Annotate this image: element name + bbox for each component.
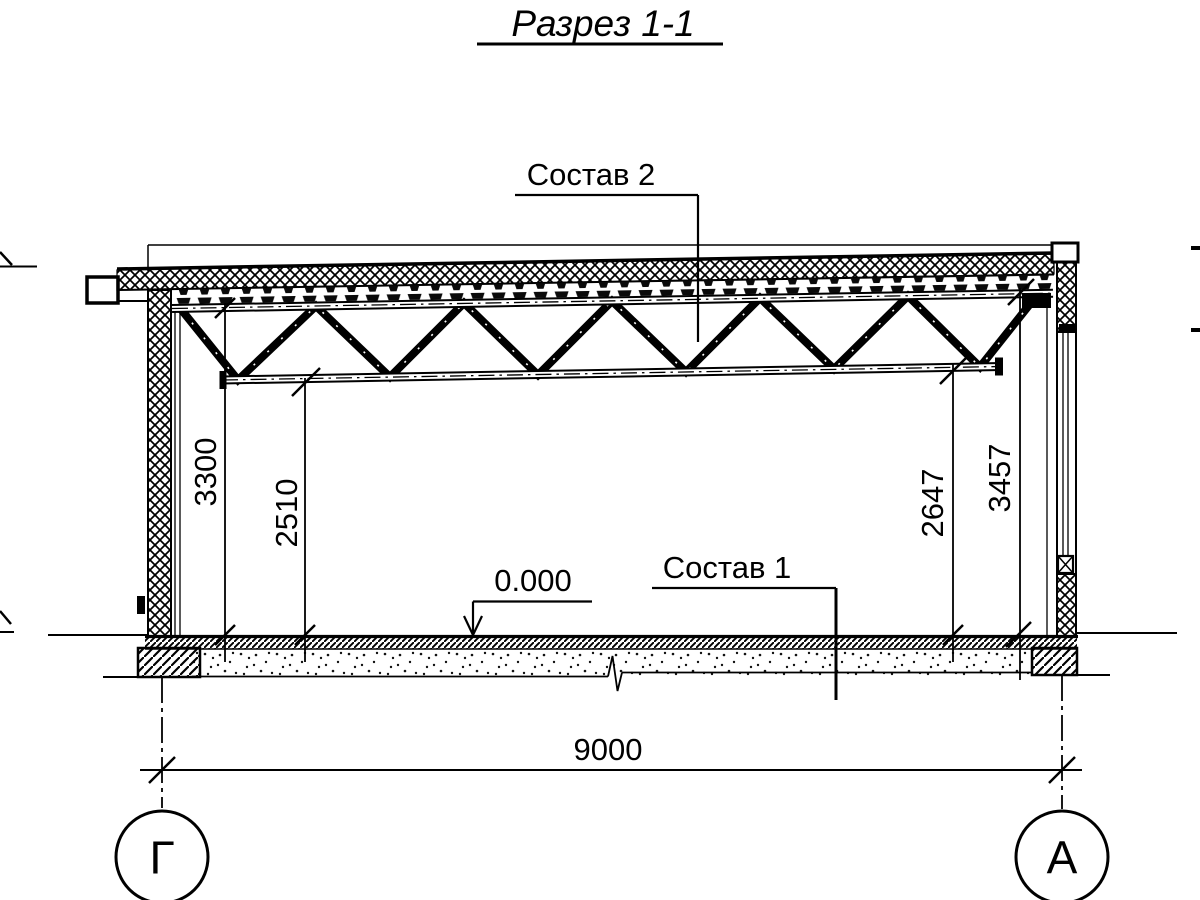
truss-seat-right xyxy=(1022,293,1051,308)
floor-screed xyxy=(145,638,1077,649)
ground-lines xyxy=(48,633,1177,635)
label-sostav-2: Состав 2 xyxy=(527,157,656,192)
dim-text-2510: 2510 xyxy=(269,479,304,548)
label-sostav-1: Состав 1 xyxy=(663,550,792,585)
drawing-canvas: Разрез 1-1 xyxy=(0,0,1200,900)
callout-floor-composition: Состав 1 xyxy=(652,550,836,700)
right-edge-level-marks xyxy=(1191,246,1200,332)
dim-text-3300: 3300 xyxy=(188,438,223,507)
axis-letter-right: А xyxy=(1047,832,1078,884)
page-title: Разрез 1-1 xyxy=(511,3,694,44)
bottom-chord-right-cap xyxy=(995,358,1003,376)
foundation-left xyxy=(103,648,200,677)
window-head xyxy=(1059,324,1075,333)
floor-slab xyxy=(145,637,1078,692)
roof-truss xyxy=(172,293,1053,389)
axis-bubble-left: Г xyxy=(116,811,208,900)
section-drawing-svg: Разрез 1-1 xyxy=(0,0,1200,900)
left-edge-level-marks xyxy=(0,252,37,632)
span-dimension: 9000 xyxy=(140,675,1082,809)
truss-bottom-chord xyxy=(222,367,1002,381)
left-wall-bracket xyxy=(137,596,145,614)
left-wall xyxy=(137,290,180,637)
vertical-dimensions xyxy=(215,279,1034,680)
floor-level-mark: 0.000 xyxy=(464,563,592,635)
parapet-cap xyxy=(1052,243,1078,262)
dim-text-3457: 3457 xyxy=(982,444,1017,513)
dim-text-9000: 9000 xyxy=(574,732,643,767)
label-floor-level: 0.000 xyxy=(494,563,572,598)
axis-letter-left: Г xyxy=(150,832,175,884)
axis-bubble-right: А xyxy=(1016,811,1108,900)
callout-roof-composition: Состав 2 xyxy=(515,157,698,342)
right-wall xyxy=(1047,243,1078,637)
dim-text-2647: 2647 xyxy=(915,469,950,538)
roof-fascia-box xyxy=(87,277,118,303)
window-sill xyxy=(1058,556,1073,573)
foundation-right xyxy=(1032,648,1110,675)
